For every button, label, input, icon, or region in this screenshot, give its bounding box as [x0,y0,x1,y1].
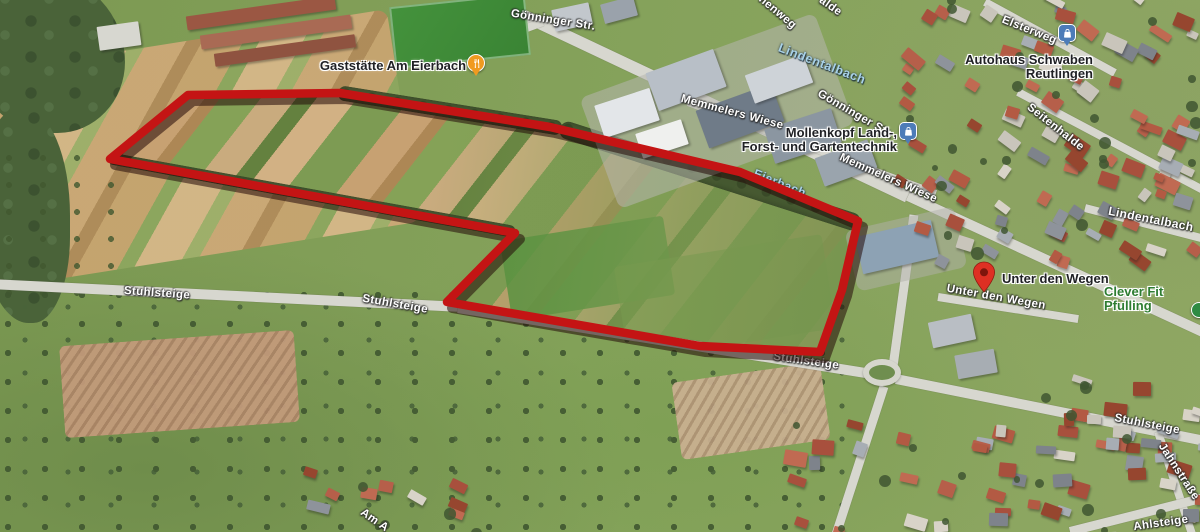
shopping-pin-icon[interactable] [899,122,917,140]
poi-label-unter-den-wegen[interactable]: Unter den Wegen [1002,272,1109,286]
shopping-pin-icon[interactable] [1058,24,1076,42]
place-marker-pin-icon[interactable] [972,261,996,293]
restaurant-pin-icon[interactable] [467,54,485,72]
poi-label-gaststaette-am-eierbach[interactable]: Gaststätte Am Eierbach [320,59,466,73]
poi-label-mollenkopf-land-forst-und-gartentechnik[interactable]: Mollenkopf Land-,Forst- und Gartentechni… [742,126,897,154]
poi-label-autohaus-schwaben-reutlingen[interactable]: Autohaus SchwabenReutlingen [965,53,1093,81]
poi-label-clever-fit-pfullingen[interactable]: Clever Fit Pfulling [1104,285,1200,313]
satellite-map-viewport[interactable]: Gönninger Str.ElsterwegMemmelers WieseGö… [0,0,1200,532]
gym-pin-icon[interactable] [1191,302,1200,318]
